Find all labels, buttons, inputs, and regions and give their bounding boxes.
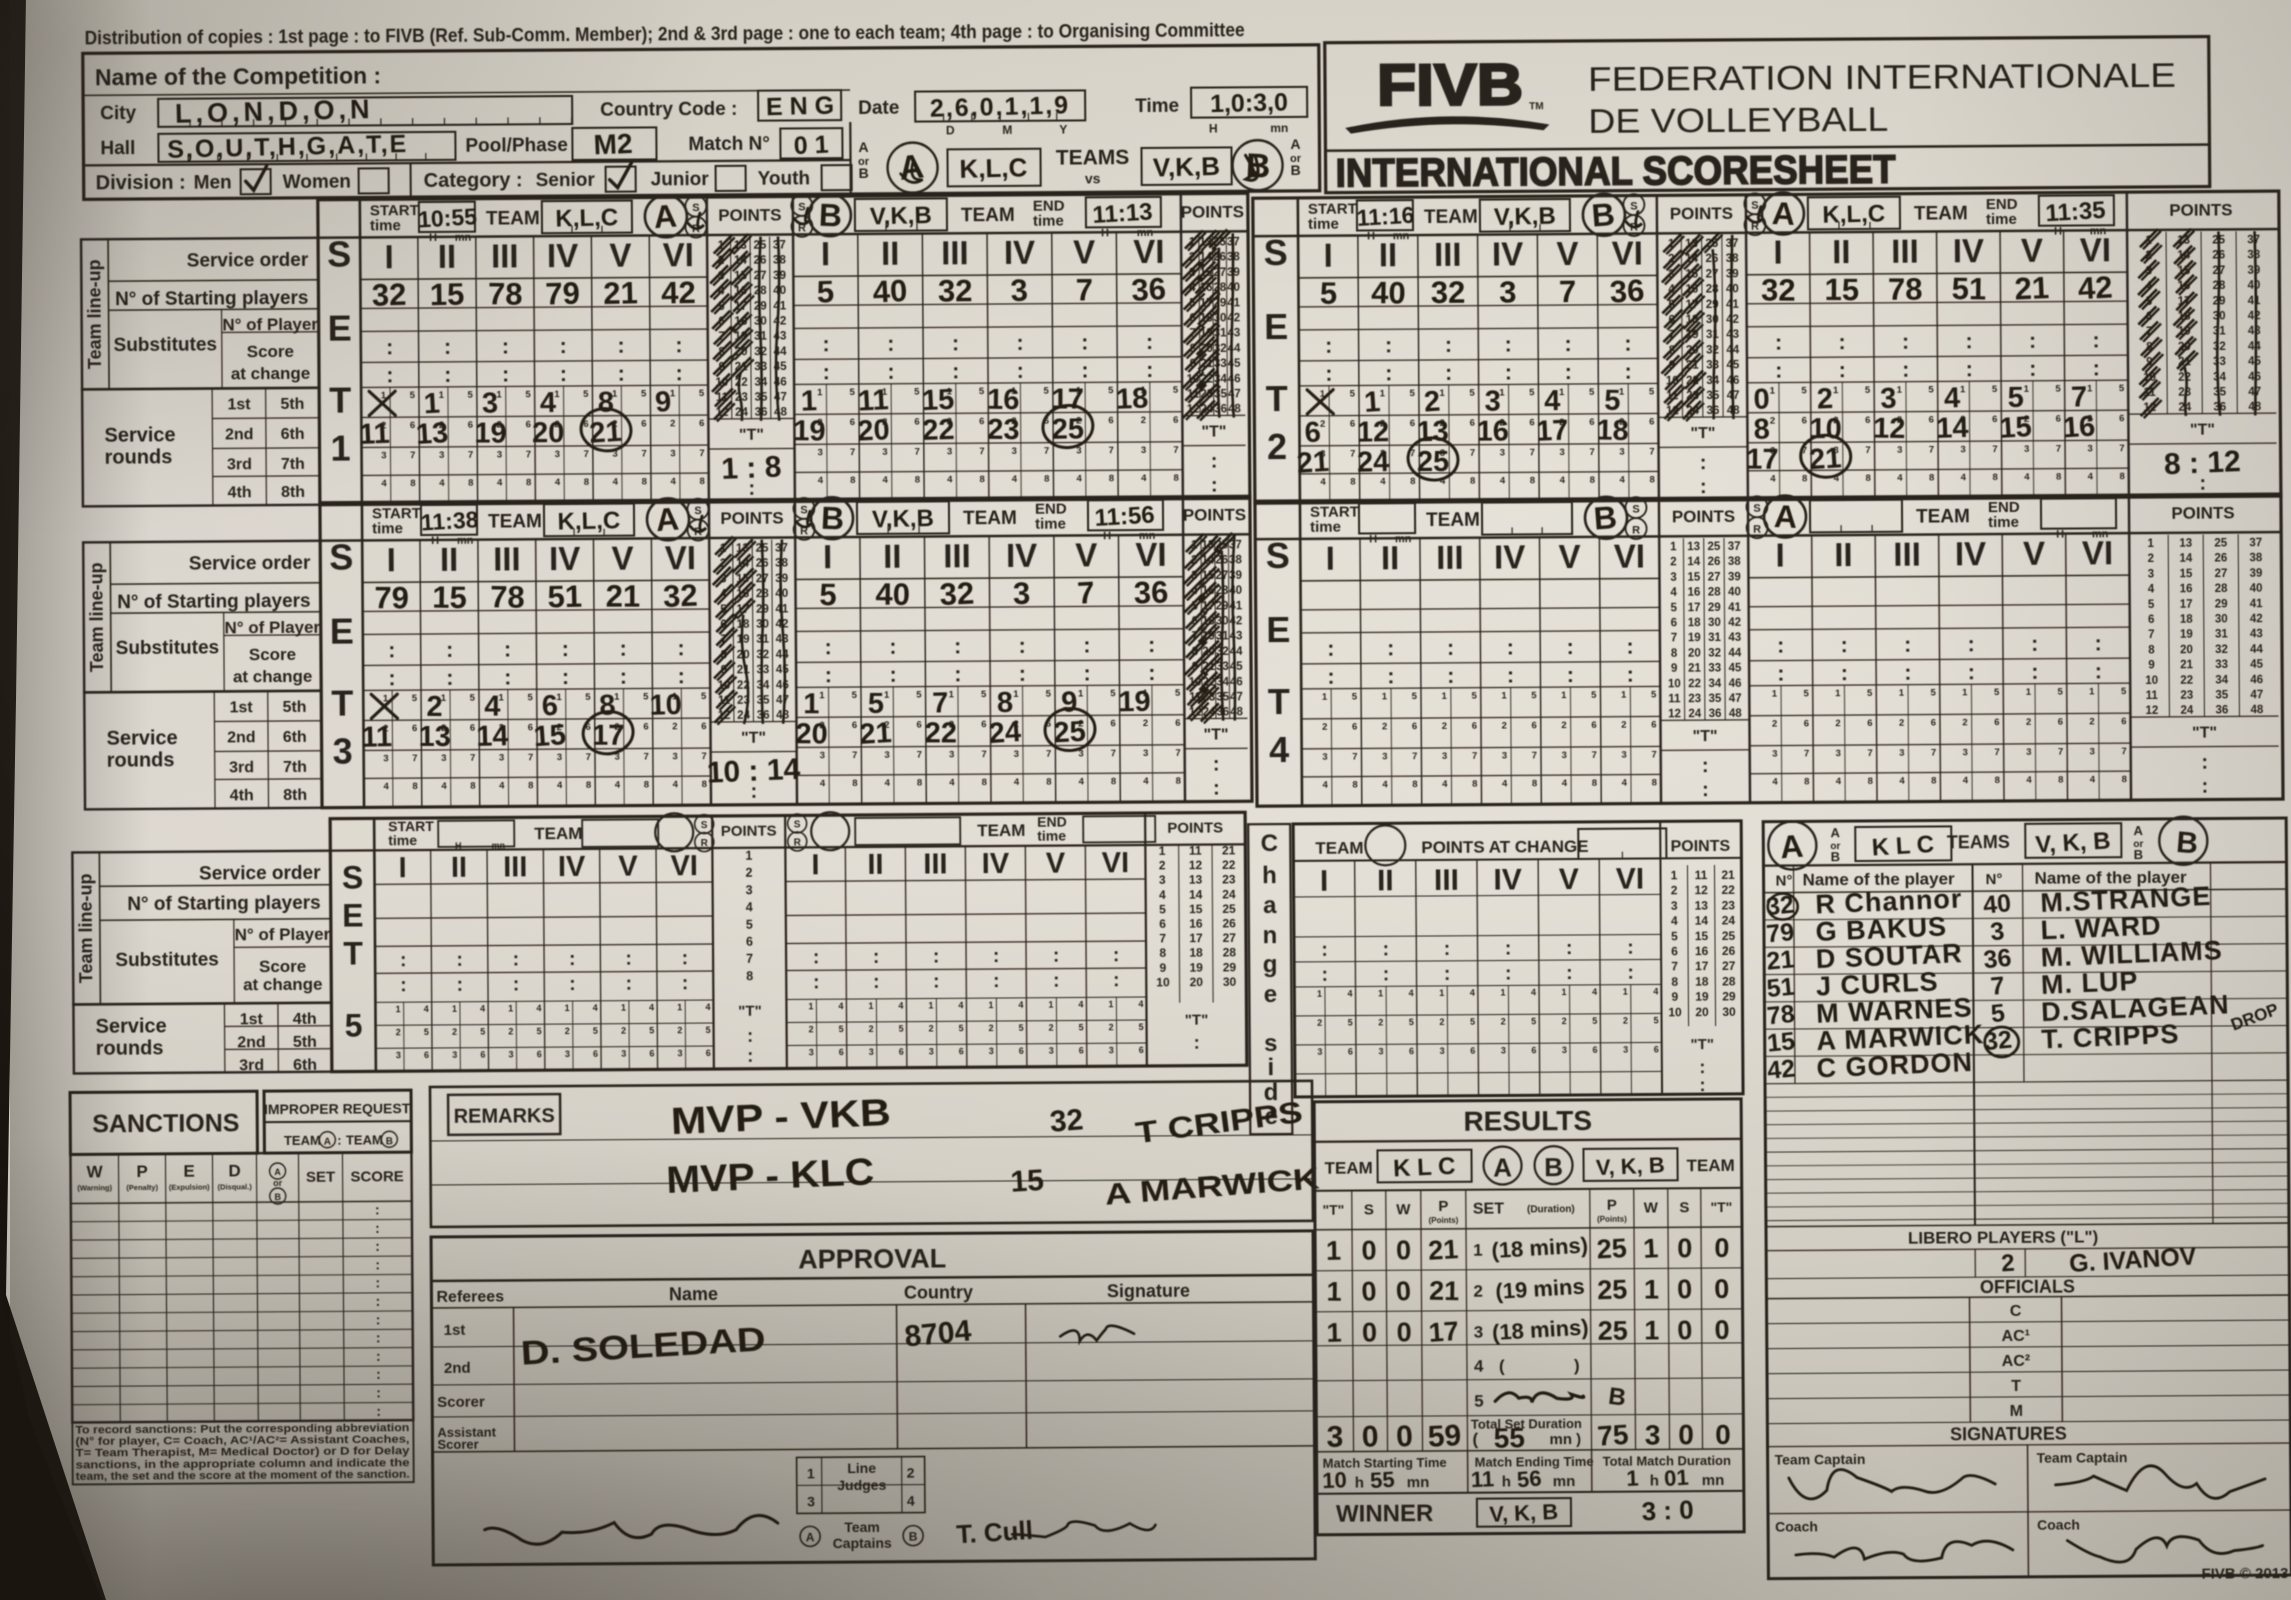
svg-text:40: 40 <box>875 577 910 612</box>
svg-text:(19 mins: (19 mins <box>1495 1274 1586 1304</box>
svg-text:Pool/Phase: Pool/Phase <box>465 135 568 157</box>
svg-text:15: 15 <box>1766 1027 1796 1058</box>
svg-text:15: 15 <box>430 277 465 313</box>
svg-text:II: II <box>1834 536 1853 573</box>
svg-text:II: II <box>883 538 902 575</box>
svg-text:SANCTIONS: SANCTIONS <box>92 1109 239 1138</box>
svg-text:5: 5 <box>468 390 474 401</box>
svg-text:12: 12 <box>1873 413 1906 446</box>
svg-text:7: 7 <box>699 448 704 459</box>
svg-text::: : <box>2092 329 2099 352</box>
svg-text:time: time <box>1035 516 1066 533</box>
svg-text::: : <box>444 336 451 359</box>
svg-text:10: 10 <box>1156 975 1170 989</box>
svg-text:29: 29 <box>1722 989 1736 1003</box>
svg-text:0: 0 <box>1714 1315 1730 1345</box>
svg-text:6: 6 <box>1079 1045 1084 1055</box>
svg-text:Signature: Signature <box>1107 1281 1190 1302</box>
svg-text:3: 3 <box>1502 750 1507 761</box>
svg-text:2: 2 <box>2000 1250 2015 1278</box>
svg-text:2: 2 <box>1835 718 1840 729</box>
svg-text:5: 5 <box>1469 388 1475 399</box>
svg-text::: : <box>993 971 999 992</box>
svg-text:19: 19 <box>1189 960 1203 974</box>
svg-text:7: 7 <box>1929 444 1934 455</box>
svg-text:5: 5 <box>1531 690 1537 701</box>
svg-text:TEAM: TEAM <box>1315 838 1363 857</box>
svg-text:21: 21 <box>859 717 893 751</box>
svg-text:4: 4 <box>882 475 888 486</box>
svg-text:A: A <box>2133 823 2143 838</box>
svg-text:6: 6 <box>1593 1045 1598 1055</box>
svg-text::: : <box>1839 359 1846 382</box>
svg-text:8: 8 <box>1671 975 1678 989</box>
svg-text:2: 2 <box>1109 1022 1114 1032</box>
svg-text:21: 21 <box>1721 868 1735 882</box>
svg-text:5: 5 <box>1019 1023 1024 1033</box>
svg-text:5th: 5th <box>280 396 304 413</box>
svg-text:23: 23 <box>987 414 1019 446</box>
svg-text:44: 44 <box>2250 644 2263 656</box>
svg-text:8: 8 <box>979 474 984 485</box>
svg-text::: : <box>1017 332 1024 355</box>
svg-text:Scorer: Scorer <box>437 1437 478 1452</box>
svg-text::: : <box>376 1329 381 1345</box>
svg-text:1: 1 <box>2087 383 2093 394</box>
svg-text:39: 39 <box>2247 265 2260 277</box>
svg-text:1: 1 <box>1962 687 1968 698</box>
svg-text:I: I <box>821 235 830 272</box>
svg-text:6: 6 <box>2121 716 2126 727</box>
svg-text:8: 8 <box>917 778 922 789</box>
svg-text:4: 4 <box>1622 778 1628 789</box>
svg-text:5: 5 <box>979 386 985 397</box>
svg-text:7: 7 <box>526 449 531 460</box>
svg-text:3: 3 <box>1559 447 1564 458</box>
svg-text:15: 15 <box>1998 411 2032 445</box>
svg-text:5: 5 <box>1410 388 1416 399</box>
svg-text:12: 12 <box>1357 416 1390 448</box>
svg-text:6: 6 <box>1108 415 1113 426</box>
svg-text:7: 7 <box>584 449 589 460</box>
svg-text:vs: vs <box>1085 170 1101 186</box>
svg-text:10: 10 <box>1668 678 1681 690</box>
svg-text:FIVB: FIVB <box>1377 52 1523 118</box>
svg-text:7: 7 <box>2121 746 2126 757</box>
svg-text:1: 1 <box>1833 385 1839 396</box>
svg-text:2: 2 <box>1899 718 1904 729</box>
svg-text:34: 34 <box>2215 674 2228 686</box>
svg-text:W: W <box>86 1162 103 1181</box>
svg-text::: : <box>1017 360 1024 383</box>
svg-text::: : <box>2199 473 2206 495</box>
svg-text:2: 2 <box>2089 716 2094 727</box>
svg-text:TEAM: TEAM <box>961 205 1015 226</box>
svg-text:24: 24 <box>2180 705 2193 717</box>
svg-text:R: R <box>1632 525 1640 537</box>
svg-text:II: II <box>438 238 457 275</box>
svg-text:4: 4 <box>958 1000 963 1010</box>
svg-text:37: 37 <box>1728 541 1741 553</box>
svg-text:7: 7 <box>1530 447 1535 458</box>
svg-text:43: 43 <box>2250 628 2263 640</box>
svg-text:6: 6 <box>1994 717 1999 728</box>
svg-text:8: 8 <box>1804 776 1809 787</box>
svg-text:8: 8 <box>1044 474 1049 485</box>
svg-text:6: 6 <box>1651 719 1656 730</box>
svg-text:5: 5 <box>1994 687 2000 698</box>
svg-text:3: 3 <box>884 750 889 761</box>
svg-text:P: P <box>136 1162 147 1181</box>
svg-text:8: 8 <box>1412 779 1417 790</box>
svg-text:rounds: rounds <box>105 446 173 468</box>
svg-text:V: V <box>2021 232 2043 269</box>
svg-text::: : <box>676 362 683 385</box>
svg-text:T. Cull: T. Cull <box>956 1515 1034 1549</box>
svg-text:29: 29 <box>2215 598 2228 610</box>
svg-text:5: 5 <box>1867 688 1873 699</box>
svg-text:OFFICIALS: OFFICIALS <box>1980 1277 2075 1298</box>
svg-text:6: 6 <box>593 1049 598 1059</box>
svg-text:V, K, B: V, K, B <box>1489 1499 1559 1527</box>
svg-text:TEAM: TEAM <box>346 1132 383 1147</box>
svg-text:21: 21 <box>1765 945 1795 976</box>
svg-text:2: 2 <box>1382 721 1387 732</box>
svg-text:I: I <box>811 849 819 881</box>
svg-text:4: 4 <box>484 690 500 722</box>
svg-text:8th: 8th <box>281 484 305 501</box>
svg-text::: : <box>560 363 567 386</box>
svg-text:h: h <box>1502 1473 1511 1490</box>
svg-text:19: 19 <box>1118 686 1151 718</box>
svg-text:0: 0 <box>1395 1420 1413 1454</box>
svg-text:6: 6 <box>1931 717 1936 728</box>
svg-text::: : <box>747 1026 753 1046</box>
svg-text:8: 8 <box>586 780 591 791</box>
svg-text:1: 1 <box>1439 988 1444 998</box>
svg-text:1st: 1st <box>230 699 254 716</box>
svg-text:Total Set Duration: Total Set Duration <box>1471 1416 1582 1432</box>
svg-text:8: 8 <box>1352 780 1357 791</box>
svg-text:VI: VI <box>1616 863 1645 896</box>
svg-text::: : <box>2095 660 2102 683</box>
svg-text:21: 21 <box>1222 843 1236 857</box>
svg-text:7: 7 <box>468 450 473 461</box>
svg-text::: : <box>1841 662 1848 685</box>
svg-text:3: 3 <box>1963 747 1968 758</box>
svg-text:22: 22 <box>2180 674 2193 686</box>
svg-text:3: 3 <box>1899 748 1904 759</box>
svg-text:6: 6 <box>1173 415 1178 426</box>
svg-text:8: 8 <box>2058 775 2063 786</box>
svg-text:1: 1 <box>423 388 441 421</box>
svg-text:23: 23 <box>2180 690 2193 702</box>
svg-text:4: 4 <box>820 778 826 789</box>
svg-text:5: 5 <box>1671 929 1678 943</box>
svg-text:Team Captain: Team Captain <box>1775 1451 1866 1468</box>
svg-text:5: 5 <box>593 1026 598 1036</box>
svg-text::: : <box>620 666 627 689</box>
svg-text:A: A <box>1771 195 1796 232</box>
svg-text:5th: 5th <box>282 699 306 716</box>
svg-text:3rd: 3rd <box>229 759 254 776</box>
svg-text:3: 3 <box>499 752 504 763</box>
svg-text:20: 20 <box>1190 975 1204 989</box>
svg-text:33: 33 <box>2213 356 2226 368</box>
svg-text:8: 8 <box>852 778 857 789</box>
svg-text:6: 6 <box>1348 1047 1353 1057</box>
svg-text:25: 25 <box>1598 1316 1628 1346</box>
svg-text:5: 5 <box>1352 692 1358 703</box>
svg-text:5: 5 <box>1651 689 1657 700</box>
svg-text:4: 4 <box>1409 988 1414 998</box>
svg-text:5: 5 <box>2148 599 2155 611</box>
svg-text:59: 59 <box>1427 1419 1462 1454</box>
svg-text::: : <box>1627 938 1633 959</box>
svg-text:1: 1 <box>1897 385 1903 396</box>
svg-text:28: 28 <box>1722 974 1736 988</box>
svg-text:36: 36 <box>1709 708 1722 720</box>
svg-text::: : <box>376 1366 381 1382</box>
svg-text:4: 4 <box>1531 987 1536 997</box>
svg-text:5: 5 <box>470 693 476 704</box>
svg-text:6: 6 <box>470 723 475 734</box>
svg-text:22: 22 <box>1688 678 1701 690</box>
svg-text::: : <box>1699 1075 1705 1095</box>
svg-text:II: II <box>1381 539 1400 576</box>
svg-text::: : <box>1627 963 1633 984</box>
svg-text:5: 5 <box>1175 688 1181 699</box>
svg-text:6: 6 <box>979 416 984 427</box>
svg-text:3: 3 <box>1143 748 1148 759</box>
svg-text:1: 1 <box>1623 987 1628 997</box>
svg-text:42: 42 <box>1766 1054 1796 1084</box>
svg-text:Service: Service <box>104 424 175 446</box>
svg-text:3: 3 <box>383 753 388 764</box>
svg-text:3: 3 <box>809 1047 814 1057</box>
svg-text:time: time <box>1308 216 1339 233</box>
svg-text:23: 23 <box>1222 873 1236 887</box>
svg-text:5: 5 <box>699 388 705 399</box>
svg-text:Match N°: Match N° <box>688 134 770 156</box>
svg-text::: : <box>2201 752 2208 774</box>
svg-text:17: 17 <box>1189 931 1203 945</box>
svg-text::: : <box>375 1220 380 1236</box>
svg-text::: : <box>887 333 894 356</box>
svg-text:2: 2 <box>396 1027 401 1037</box>
svg-text:4: 4 <box>1470 988 1475 998</box>
svg-text:Substitutes: Substitutes <box>115 949 219 971</box>
svg-text::: : <box>1838 331 1845 354</box>
svg-text:6: 6 <box>526 419 531 430</box>
svg-text:2: 2 <box>1770 416 1775 427</box>
svg-text:5: 5 <box>899 1024 904 1034</box>
svg-text:8: 8 <box>702 779 707 790</box>
svg-text:5: 5 <box>1409 1017 1414 1027</box>
svg-text:B: B <box>1831 849 1840 864</box>
svg-text:8: 8 <box>1470 476 1475 487</box>
svg-text:(Points): (Points) <box>1429 1216 1459 1225</box>
svg-text:2: 2 <box>1159 858 1166 872</box>
svg-text:16: 16 <box>1189 917 1203 931</box>
svg-text:5: 5 <box>816 274 834 309</box>
svg-text:4: 4 <box>1014 777 1020 788</box>
svg-text::: : <box>1444 964 1450 985</box>
svg-text::: : <box>825 664 832 687</box>
svg-text::: : <box>1019 663 1026 686</box>
svg-text:24: 24 <box>1222 887 1236 901</box>
svg-text:3: 3 <box>672 751 677 762</box>
svg-text:18: 18 <box>1596 414 1629 447</box>
svg-text:14: 14 <box>1936 412 1969 445</box>
svg-text:7: 7 <box>1649 446 1654 457</box>
svg-text:3: 3 <box>2090 746 2095 757</box>
svg-text:S: S <box>692 202 699 214</box>
svg-text:3: 3 <box>882 447 887 458</box>
svg-text:13: 13 <box>1687 541 1700 553</box>
svg-text:DE VOLLEYBALL: DE VOLLEYBALL <box>1588 101 1888 141</box>
svg-text:5: 5 <box>2055 384 2061 395</box>
svg-text:1: 1 <box>1326 1318 1342 1348</box>
svg-text:15: 15 <box>533 719 567 753</box>
svg-text::: : <box>1325 363 1332 386</box>
svg-text:4: 4 <box>1897 473 1903 484</box>
svg-text:"T": "T" <box>1690 1036 1714 1053</box>
svg-text:1: 1 <box>1013 689 1019 700</box>
svg-text:V,K,B: V,K,B <box>1153 151 1221 183</box>
svg-text:2: 2 <box>1501 1016 1506 1026</box>
svg-text:32: 32 <box>1049 1103 1085 1138</box>
svg-text::: : <box>1213 753 1220 775</box>
svg-text:H: H <box>2054 226 2062 238</box>
svg-text:8: 8 <box>410 478 415 489</box>
svg-text:S: S <box>1679 1199 1689 1216</box>
svg-text:rounds: rounds <box>107 749 175 771</box>
svg-text:4: 4 <box>649 1002 654 1012</box>
svg-text:V, K, B: V, K, B <box>1595 1152 1665 1180</box>
svg-text:40: 40 <box>1371 275 1406 311</box>
svg-text:V: V <box>1556 235 1578 272</box>
svg-text:S: S <box>1751 200 1758 212</box>
svg-text:POINTS AT CHANGE: POINTS AT CHANGE <box>1421 837 1588 857</box>
svg-text::: : <box>890 664 897 687</box>
svg-text:7: 7 <box>1804 748 1809 759</box>
svg-text:6: 6 <box>1804 718 1809 729</box>
svg-text::: : <box>375 1275 380 1291</box>
svg-text:33: 33 <box>1706 360 1719 372</box>
svg-text:46: 46 <box>1228 373 1241 385</box>
svg-text:mn: mn <box>455 232 472 244</box>
svg-text:0: 0 <box>1677 1315 1694 1346</box>
svg-text::: : <box>1507 664 1514 687</box>
svg-text:1st: 1st <box>444 1322 466 1339</box>
svg-text:7: 7 <box>1592 750 1597 761</box>
svg-text:2: 2 <box>2026 717 2031 728</box>
svg-text:V, K, B: V, K, B <box>2035 827 2112 858</box>
svg-text:47: 47 <box>2250 689 2263 701</box>
svg-text::: : <box>823 361 830 384</box>
svg-text::: : <box>1213 777 1220 799</box>
svg-text:9: 9 <box>1159 961 1166 975</box>
svg-text:47: 47 <box>1228 388 1241 400</box>
svg-text:44: 44 <box>776 649 789 661</box>
svg-text:6th: 6th <box>293 1057 317 1074</box>
svg-text:5: 5 <box>1046 689 1052 700</box>
svg-text:mn: mn <box>457 535 474 547</box>
svg-text:8: 8 <box>468 478 473 489</box>
svg-text:A: A <box>1290 136 1300 152</box>
svg-text:15: 15 <box>432 580 467 616</box>
svg-text:A: A <box>324 1137 331 1148</box>
svg-text:Team line-up: Team line-up <box>75 873 96 983</box>
svg-text:13: 13 <box>2179 538 2192 550</box>
svg-text:3 : 0: 3 : 0 <box>1641 1494 1694 1526</box>
svg-text:S: S <box>1632 504 1639 516</box>
svg-text:S: S <box>701 820 708 831</box>
svg-text:POINTS: POINTS <box>1167 819 1223 836</box>
svg-text:34: 34 <box>2213 371 2226 383</box>
svg-text:K L C: K L C <box>1393 1153 1456 1183</box>
svg-text:4: 4 <box>1562 778 1568 789</box>
svg-text:4th: 4th <box>228 484 252 501</box>
svg-text::: : <box>2202 776 2209 798</box>
svg-text::: : <box>682 948 688 969</box>
svg-text:44: 44 <box>1230 646 1243 658</box>
svg-text:5: 5 <box>868 688 884 720</box>
svg-text:8: 8 <box>1410 476 1415 487</box>
svg-text:11: 11 <box>857 384 889 417</box>
svg-text:3: 3 <box>1322 752 1327 763</box>
svg-text:3rd: 3rd <box>239 1057 264 1074</box>
svg-text:79: 79 <box>374 580 409 615</box>
svg-text:6: 6 <box>1649 416 1654 427</box>
svg-text:8: 8 <box>642 476 647 487</box>
svg-text:5: 5 <box>1990 999 2007 1028</box>
svg-text:3: 3 <box>869 1047 874 1057</box>
svg-text:4: 4 <box>898 1001 903 1011</box>
svg-text:Y: Y <box>1059 123 1067 137</box>
svg-text:2: 2 <box>670 418 675 429</box>
svg-text:time: time <box>1033 213 1064 230</box>
svg-text:28: 28 <box>1223 946 1237 960</box>
svg-text:21: 21 <box>1296 446 1330 480</box>
svg-text:(Warning): (Warning) <box>77 1183 112 1192</box>
svg-text:6: 6 <box>1531 1045 1536 1055</box>
svg-text:44: 44 <box>1726 344 1739 356</box>
svg-text:5: 5 <box>706 1025 711 1035</box>
svg-text:17: 17 <box>2180 598 2193 610</box>
svg-text:5: 5 <box>916 690 922 701</box>
svg-text::: : <box>376 1311 381 1327</box>
svg-text:8: 8 <box>1931 775 1936 786</box>
svg-text::: : <box>823 333 830 356</box>
svg-text:13: 13 <box>1695 898 1709 912</box>
svg-text:8: 8 <box>644 779 649 790</box>
svg-text:TEAM: TEAM <box>963 508 1017 529</box>
svg-text:25: 25 <box>1052 413 1085 445</box>
svg-text:26: 26 <box>1708 556 1721 568</box>
svg-text:2: 2 <box>869 1024 874 1034</box>
svg-text:2: 2 <box>989 1023 994 1033</box>
svg-text:6: 6 <box>1865 415 1870 426</box>
svg-text:21: 21 <box>1427 1234 1459 1266</box>
svg-text:3: 3 <box>1499 274 1516 309</box>
svg-text:8: 8 <box>982 777 987 788</box>
svg-text:26: 26 <box>2214 553 2227 565</box>
svg-text:12: 12 <box>1668 708 1681 720</box>
svg-text:40: 40 <box>2247 280 2260 292</box>
svg-text:Team: Team <box>844 1519 880 1535</box>
